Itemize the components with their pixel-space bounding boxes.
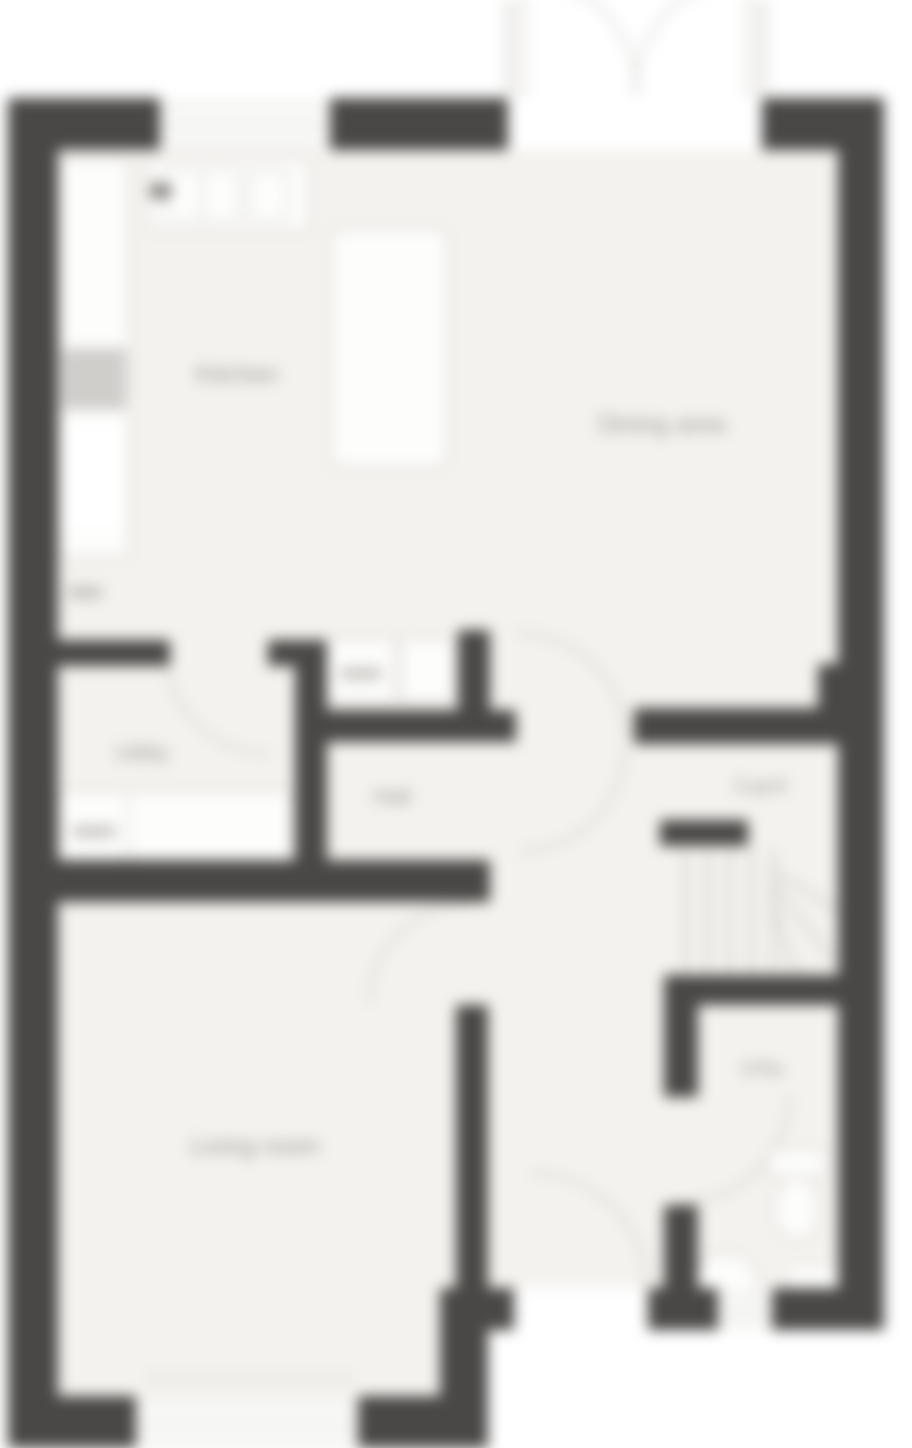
wall-bottom-middle xyxy=(358,1396,488,1448)
french-door-frame-right xyxy=(762,0,766,96)
french-door-frame-left xyxy=(506,0,510,96)
floor-plan-image: Kitchen Dining area Utility Hall Cup'd L… xyxy=(0,0,912,1448)
wall-cloaks-north xyxy=(664,975,884,1005)
wall-cloaks-west-upper xyxy=(664,1005,698,1097)
wall-bottom-entrance-right xyxy=(648,1288,718,1330)
room-label-utility: Utility xyxy=(115,740,169,766)
wall-kitchen-stub xyxy=(458,630,490,714)
appliance-label-smudge-wm xyxy=(340,667,382,680)
toilet-cistern xyxy=(768,1148,826,1178)
room-label-cupboard: Cup'd xyxy=(734,776,786,799)
sink-divider xyxy=(201,168,203,222)
room-label-kitchen: Kitchen xyxy=(195,361,278,390)
room-label-cloaks: Cl'ks xyxy=(741,1059,784,1082)
appliance-label-smudge-ff xyxy=(68,586,102,599)
wall-left xyxy=(8,98,58,1448)
stair-tread xyxy=(728,848,731,975)
oven-housing xyxy=(62,348,126,410)
wall-bottom-entrance-left xyxy=(486,1288,514,1330)
room-label-living-room: Living room xyxy=(190,1133,319,1162)
stair-tread xyxy=(706,848,709,975)
kitchen-window xyxy=(160,104,330,146)
stair-tread xyxy=(684,848,687,975)
radiator xyxy=(150,1372,350,1384)
cloaks-window xyxy=(718,1294,772,1326)
wall-kitchen-south xyxy=(295,710,516,742)
toilet-bowl xyxy=(774,1176,820,1240)
living-room-window xyxy=(136,1402,358,1444)
wall-top-middle xyxy=(330,98,508,150)
wall-bottom-cloaks xyxy=(772,1288,884,1330)
wall-living-room-north xyxy=(58,860,490,902)
wall-stair-head xyxy=(660,820,748,846)
french-door-swing-left-arc xyxy=(524,0,638,93)
wall-hall-living-divider xyxy=(456,1005,488,1290)
wall-dining-se-corner xyxy=(818,664,884,744)
fridge-freezer xyxy=(62,425,126,530)
room-label-hall: Hall xyxy=(373,784,411,810)
room-label-dining-area: Dining area xyxy=(598,411,726,440)
wall-cloaks-west-lower xyxy=(664,1205,698,1290)
wall-utility-north-left xyxy=(58,640,170,666)
tap-icon xyxy=(150,183,172,199)
utility-worktop-divider xyxy=(127,790,129,864)
appliance-unit-2 xyxy=(400,638,456,702)
stair-tread xyxy=(750,848,753,975)
kitchen-peninsula xyxy=(330,228,448,468)
floor-plan: Kitchen Dining area Utility Hall Cup'd L… xyxy=(0,0,912,1448)
french-door-swing-right-arc xyxy=(634,0,748,93)
appliance-label-smudge-utility xyxy=(72,825,116,838)
wall-bottom-left xyxy=(8,1396,136,1448)
drainer xyxy=(248,170,288,222)
